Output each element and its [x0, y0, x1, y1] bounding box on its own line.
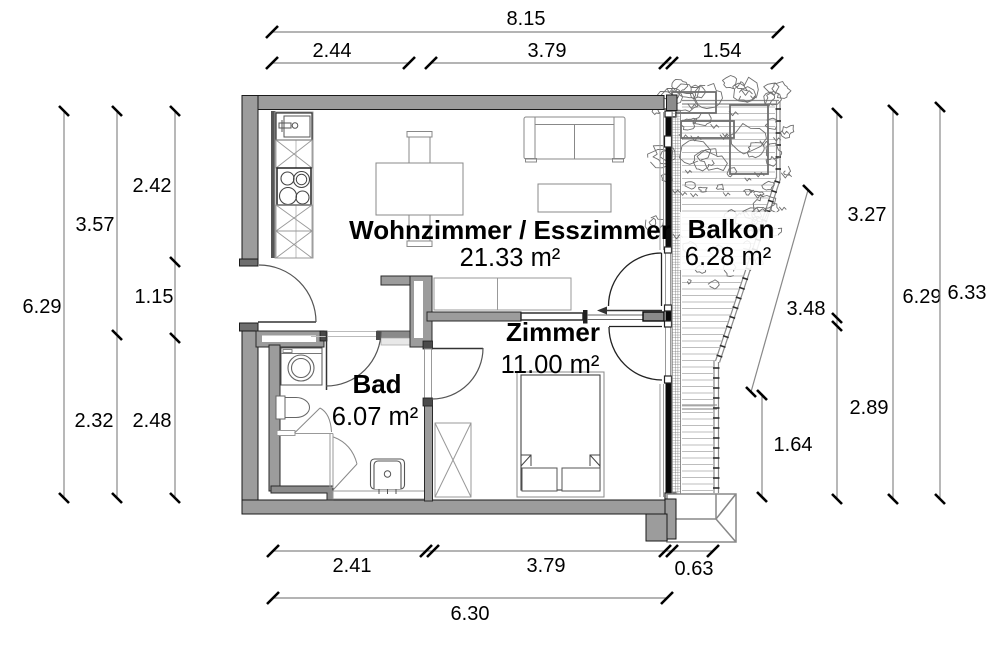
svg-text:2.41: 2.41 — [333, 555, 372, 577]
svg-text:0.63: 0.63 — [675, 558, 714, 580]
svg-text:1.54: 1.54 — [703, 40, 742, 62]
svg-text:21.33 m²: 21.33 m² — [460, 244, 561, 272]
svg-text:6.30: 6.30 — [451, 603, 490, 625]
svg-text:2.32: 2.32 — [75, 410, 114, 432]
svg-text:6.07 m²: 6.07 m² — [332, 403, 418, 431]
svg-text:3.48: 3.48 — [787, 298, 826, 320]
svg-text:2.42: 2.42 — [133, 175, 172, 197]
svg-text:6.28 m²: 6.28 m² — [685, 243, 771, 271]
svg-text:1.15: 1.15 — [135, 286, 174, 308]
svg-text:3.57: 3.57 — [76, 214, 115, 236]
svg-text:6.29: 6.29 — [23, 296, 62, 318]
svg-text:3.79: 3.79 — [527, 555, 566, 577]
svg-text:Balkon: Balkon — [688, 214, 775, 244]
svg-text:6.29: 6.29 — [903, 286, 942, 308]
svg-text:Zimmer: Zimmer — [506, 317, 600, 347]
svg-text:2.48: 2.48 — [133, 410, 172, 432]
svg-text:3.79: 3.79 — [528, 40, 567, 62]
svg-text:8.15: 8.15 — [507, 8, 546, 30]
svg-text:2.44: 2.44 — [313, 40, 352, 62]
svg-text:2.89: 2.89 — [850, 397, 889, 419]
svg-text:6.33: 6.33 — [948, 282, 987, 304]
svg-text:Wohnzimmer / Esszimmer: Wohnzimmer / Esszimmer — [349, 215, 671, 245]
svg-text:Bad: Bad — [352, 369, 401, 399]
svg-text:11.00 m²: 11.00 m² — [501, 351, 600, 379]
svg-text:3.27: 3.27 — [848, 204, 887, 226]
svg-text:1.64: 1.64 — [774, 434, 813, 456]
